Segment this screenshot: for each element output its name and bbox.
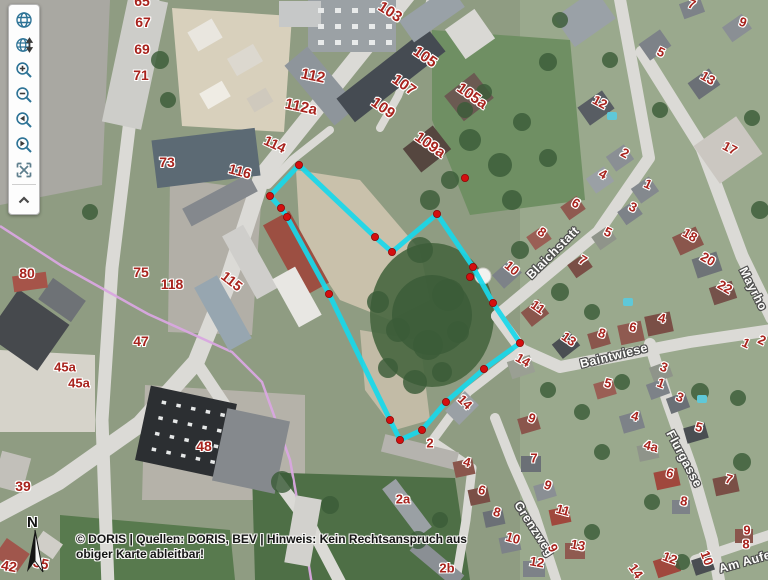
vertex-dot	[325, 290, 332, 297]
vertex-dot	[266, 192, 273, 199]
toolbar-divider	[12, 184, 36, 185]
vertex-dot	[396, 436, 403, 443]
vertex-dot	[283, 213, 290, 220]
vertex-dot	[295, 161, 302, 168]
vertex-dot	[516, 339, 523, 346]
aerial-map-canvas[interactable]	[0, 0, 768, 580]
vertex-dot	[469, 263, 476, 270]
vertex-dot	[386, 416, 393, 423]
collapse-icon[interactable]	[11, 187, 37, 212]
vertex-dot	[466, 273, 473, 280]
map-toolbar	[8, 4, 40, 215]
vertex-dot	[388, 248, 395, 255]
vertex-dot	[480, 365, 487, 372]
zoom-out-icon[interactable]	[11, 82, 37, 107]
vertex-dot	[371, 233, 378, 240]
next-extent-icon[interactable]	[11, 132, 37, 157]
zoom-in-icon[interactable]	[11, 57, 37, 82]
map-viewport[interactable]: 656769717380751181151141164745a45a394842…	[0, 0, 768, 580]
globe-icon[interactable]	[11, 7, 37, 32]
globe-extent-icon[interactable]	[11, 32, 37, 57]
vertex-dot	[418, 426, 425, 433]
pan-icon[interactable]	[11, 157, 37, 182]
vertex-dot	[442, 398, 449, 405]
prev-extent-icon[interactable]	[11, 107, 37, 132]
vertex-dot	[461, 174, 468, 181]
vertex-dot	[433, 210, 440, 217]
vertex-dot	[489, 299, 496, 306]
vertex-dot	[277, 204, 284, 211]
